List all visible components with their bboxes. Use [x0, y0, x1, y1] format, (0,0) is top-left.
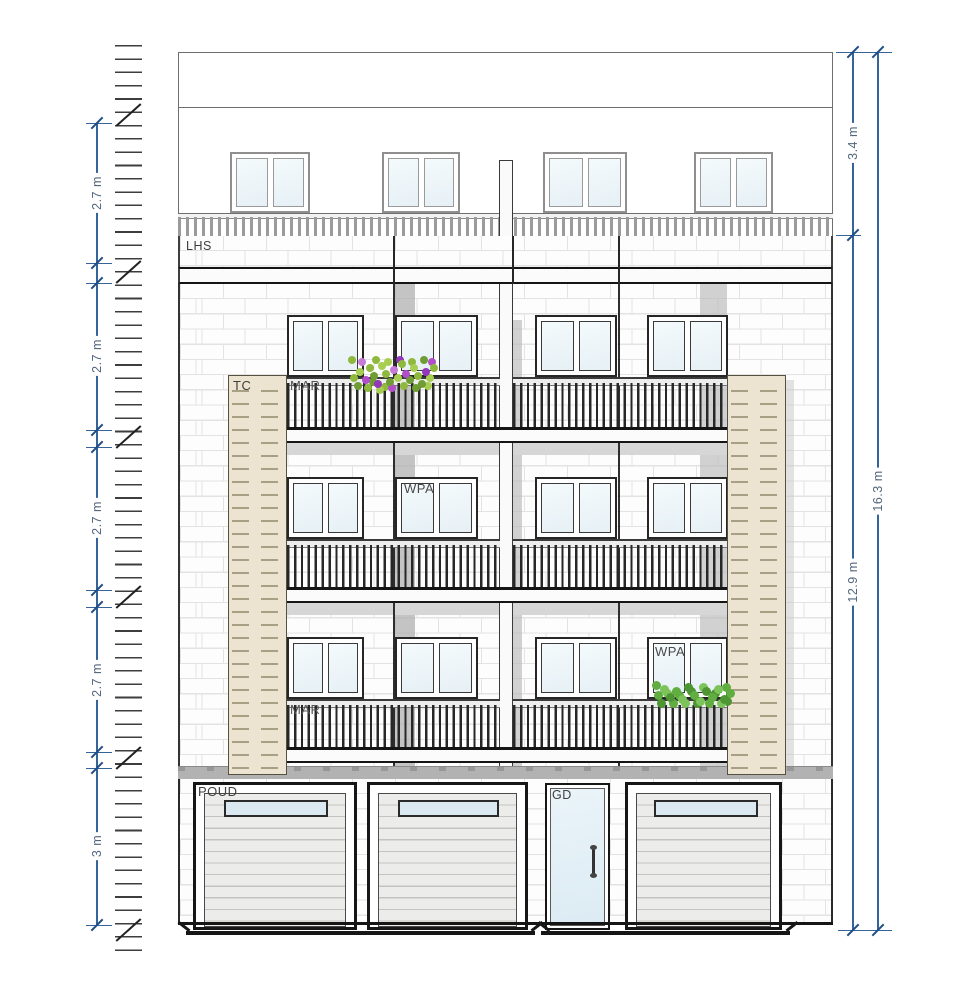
entrance-door — [545, 783, 610, 930]
dimension-label-left-1: 2.7 m — [90, 173, 104, 213]
dimension-label-12-9m: 12.9 m — [846, 558, 860, 605]
parapet-top-band — [178, 52, 833, 108]
dimension-stub — [86, 590, 112, 591]
window — [535, 637, 617, 699]
left-pier — [228, 375, 287, 775]
window-pane — [690, 321, 722, 371]
party-wall-line — [618, 236, 620, 772]
band-divider — [393, 236, 395, 284]
dimension-stub — [86, 263, 112, 264]
dimension-label-left-5: 3 m — [90, 832, 104, 860]
window-pane — [439, 483, 472, 533]
window-pane — [653, 483, 685, 533]
band-divider — [512, 236, 514, 284]
dimension-stub — [86, 768, 112, 769]
garage-door — [193, 782, 357, 930]
label-wpa-lower: WPA — [655, 644, 685, 659]
balcony-slab — [287, 427, 727, 443]
dimension-stub — [86, 283, 112, 284]
window-pane — [401, 321, 434, 371]
window-pane — [293, 643, 323, 693]
dimension-stub — [86, 430, 112, 431]
window — [287, 315, 364, 377]
balcony-slab — [287, 587, 727, 603]
balcony-railing — [513, 699, 727, 749]
dimension-label-left-3: 2.7 m — [90, 498, 104, 538]
window-pane — [293, 483, 323, 533]
window — [535, 315, 617, 377]
parapet-lower-band — [178, 107, 833, 122]
left-hatch-strip — [115, 45, 142, 962]
window-pane — [328, 483, 358, 533]
extension-line — [838, 930, 892, 931]
window-pane — [401, 643, 434, 693]
window — [287, 477, 364, 539]
window-pane — [690, 483, 722, 533]
ground-line-wall — [178, 922, 833, 925]
garage-door-window — [654, 800, 758, 817]
window — [395, 315, 478, 377]
label-mar-upper: MAR — [290, 378, 320, 393]
window — [287, 637, 364, 699]
attic-window — [382, 152, 460, 213]
window-pane — [424, 158, 455, 207]
dimension-stub — [86, 925, 112, 926]
window-pane — [293, 321, 323, 371]
window-pane — [273, 158, 305, 207]
window — [395, 637, 478, 699]
window-pane — [700, 158, 731, 207]
balcony-slab — [287, 747, 727, 763]
elevation-drawing: LHS TC MAR MAR WPA WPA POUD GD 2.7 m 2.7… — [0, 0, 972, 982]
ground-line-threshold — [541, 931, 790, 935]
window-pane — [690, 643, 722, 693]
dimension-label-left-4: 2.7 m — [90, 660, 104, 700]
window-pane — [549, 158, 583, 207]
balcony-flowers — [348, 356, 356, 364]
garage-door-window — [224, 800, 328, 817]
window-pane — [541, 321, 574, 371]
label-gd: GD — [552, 788, 572, 802]
balcony-shrubs — [652, 681, 661, 690]
label-wpa-mid: WPA — [404, 481, 434, 496]
ground-line-threshold — [186, 931, 535, 935]
label-tc: TC — [233, 378, 251, 393]
dimension-label-left-2: 2.7 m — [90, 336, 104, 376]
extension-line — [836, 52, 892, 53]
door-handle — [592, 847, 595, 875]
door-handle-knob — [590, 845, 597, 850]
dimension-stub — [86, 752, 112, 753]
label-lhs: LHS — [186, 239, 212, 253]
window-pane — [588, 158, 622, 207]
window-pane — [579, 321, 612, 371]
window — [535, 477, 617, 539]
window-pane — [236, 158, 268, 207]
window-pane — [439, 643, 472, 693]
dimension-label-16-3m: 16.3 m — [871, 467, 885, 514]
dimension-stub — [86, 607, 112, 608]
lhs-brick-band — [178, 236, 833, 267]
dimension-stub — [86, 447, 112, 448]
attic-window — [694, 152, 773, 213]
window-pane — [388, 158, 419, 207]
window-pane — [541, 483, 574, 533]
window-pane — [736, 158, 767, 207]
dimension-stub — [86, 123, 112, 124]
balcony-railing — [513, 539, 727, 589]
window-pane — [653, 321, 685, 371]
balcony-railing — [287, 539, 500, 589]
window-pane — [439, 321, 472, 371]
window — [647, 477, 728, 539]
label-poud: POUD — [198, 784, 238, 799]
garage-door — [367, 782, 528, 930]
window-pane — [579, 643, 612, 693]
dimension-label-3-4m: 3.4 m — [846, 123, 860, 163]
attic-window — [230, 152, 310, 213]
right-pier — [727, 375, 786, 775]
garage-door — [625, 782, 782, 930]
upper-slab-band — [178, 267, 833, 284]
attic-window — [543, 152, 627, 213]
window — [647, 315, 728, 377]
window-pane — [541, 643, 574, 693]
entrance-door-glass — [550, 788, 605, 926]
balcony-railing — [513, 377, 727, 427]
label-mar-lower: MAR — [290, 702, 320, 717]
garage-door-window — [398, 800, 499, 817]
door-handle-knob — [590, 873, 597, 878]
window-pane — [328, 643, 358, 693]
pier-right-shadow — [786, 380, 794, 766]
window-pane — [579, 483, 612, 533]
band-divider — [618, 236, 620, 284]
